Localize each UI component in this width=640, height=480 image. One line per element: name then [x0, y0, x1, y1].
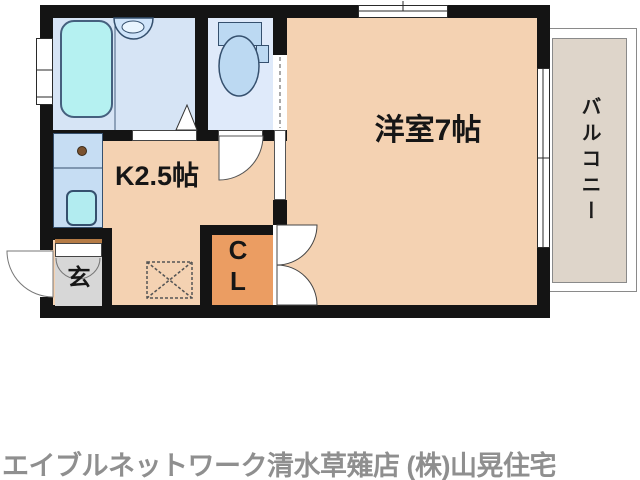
entrance-door-swing	[7, 251, 53, 297]
toilet-door-swing	[219, 136, 263, 180]
refrigerator-space-icon	[147, 262, 192, 298]
floor-plan-canvas: バルコニー	[0, 0, 640, 480]
entrance-label: 玄	[61, 263, 97, 291]
stove-burner-icon	[78, 147, 87, 156]
washbasin-bowl-icon	[122, 21, 144, 33]
kitchen-label: K2.5帖	[92, 159, 222, 193]
plan-symbols-layer	[0, 0, 640, 480]
western-room-label: 洋室7帖	[328, 112, 528, 150]
closet-label: C L	[210, 227, 266, 305]
closet-door-bottom-swing	[277, 265, 317, 305]
folding-door-icon	[176, 105, 197, 130]
closet-door-top-swing	[277, 225, 317, 265]
agency-caption: エイブルネットワーク清水草薙店 (株)山晃住宅	[2, 444, 638, 480]
toilet-bowl-icon	[219, 36, 259, 96]
